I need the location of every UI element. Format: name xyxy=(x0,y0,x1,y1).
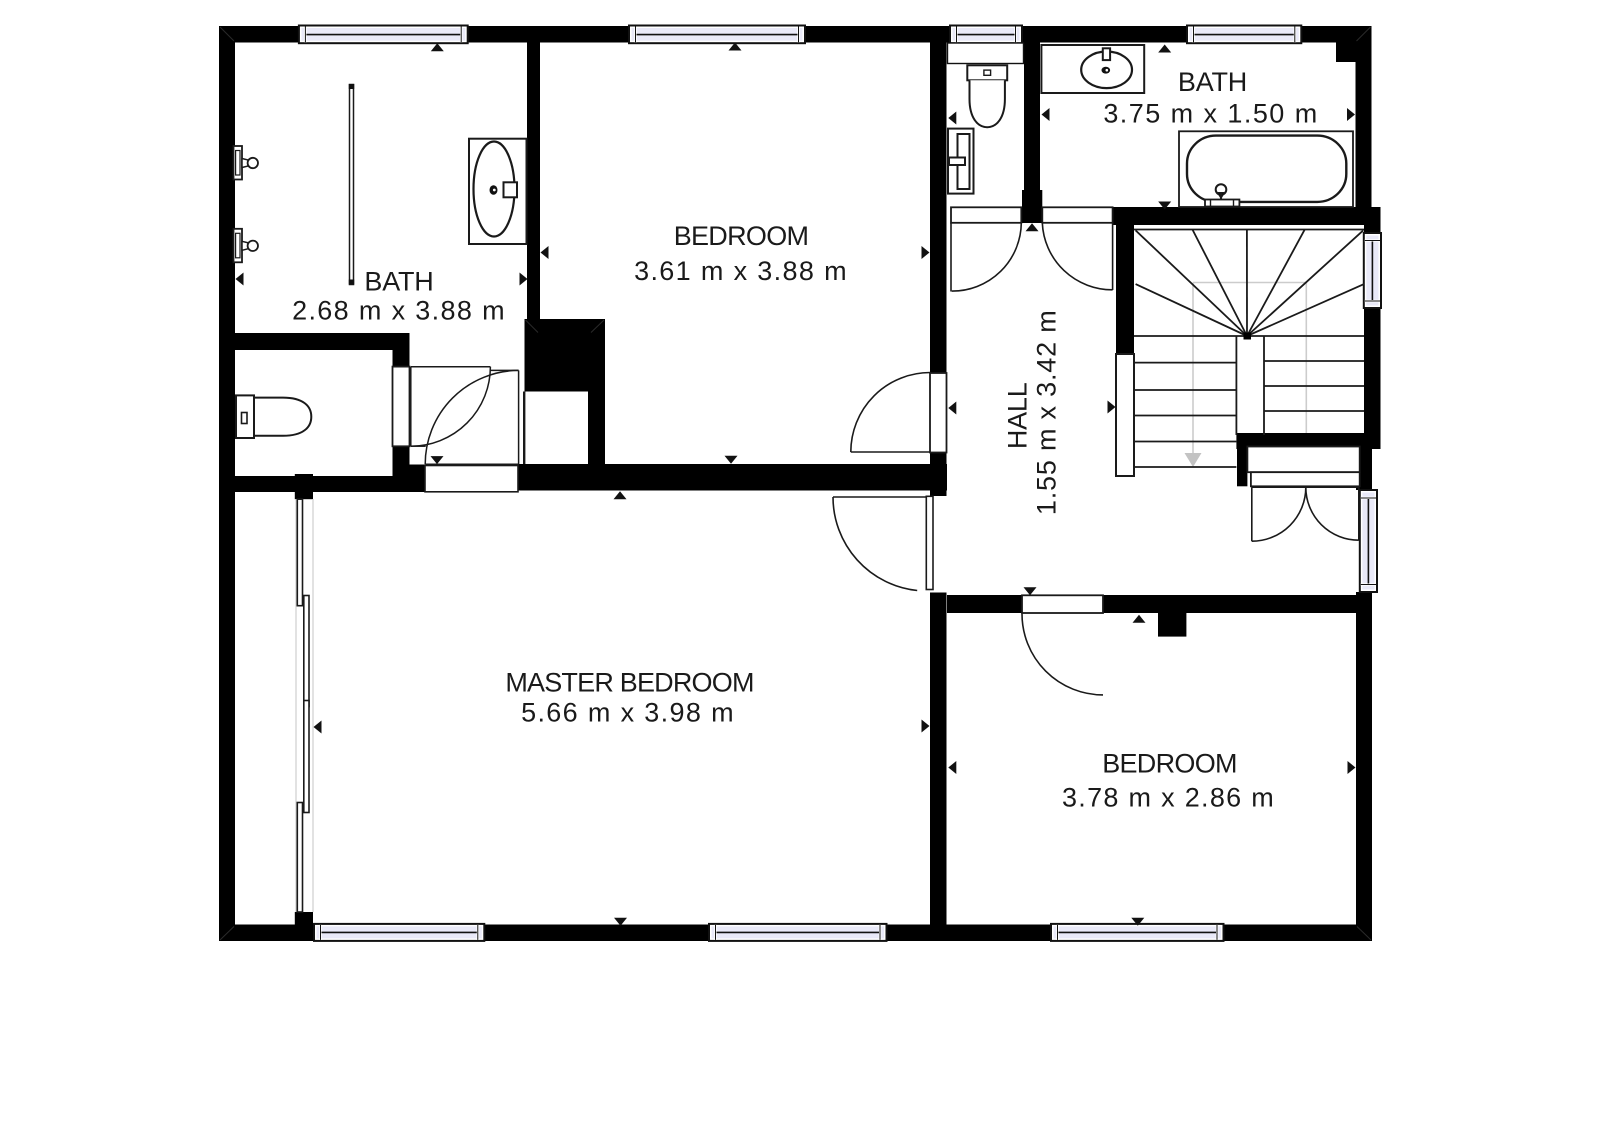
svg-text:HALL: HALL xyxy=(1003,382,1033,449)
svg-text:3.61 m x 3.88 m: 3.61 m x 3.88 m xyxy=(634,256,848,286)
svg-text:BEDROOM: BEDROOM xyxy=(1102,749,1237,779)
svg-text:MASTER BEDROOM: MASTER BEDROOM xyxy=(505,668,753,698)
svg-text:BATH: BATH xyxy=(1178,67,1247,97)
svg-text:3.78 m x 2.86 m: 3.78 m x 2.86 m xyxy=(1062,783,1275,813)
svg-text:2.68 m x 3.88 m: 2.68 m x 3.88 m xyxy=(292,296,506,326)
svg-text:3.75 m x 1.50 m: 3.75 m x 1.50 m xyxy=(1103,99,1318,129)
svg-text:BATH: BATH xyxy=(364,267,433,297)
svg-text:1.55 m x 3.42 m: 1.55 m x 3.42 m xyxy=(1031,310,1061,516)
svg-text:5.66 m x 3.98 m: 5.66 m x 3.98 m xyxy=(521,698,735,728)
svg-text:BEDROOM: BEDROOM xyxy=(674,221,809,251)
